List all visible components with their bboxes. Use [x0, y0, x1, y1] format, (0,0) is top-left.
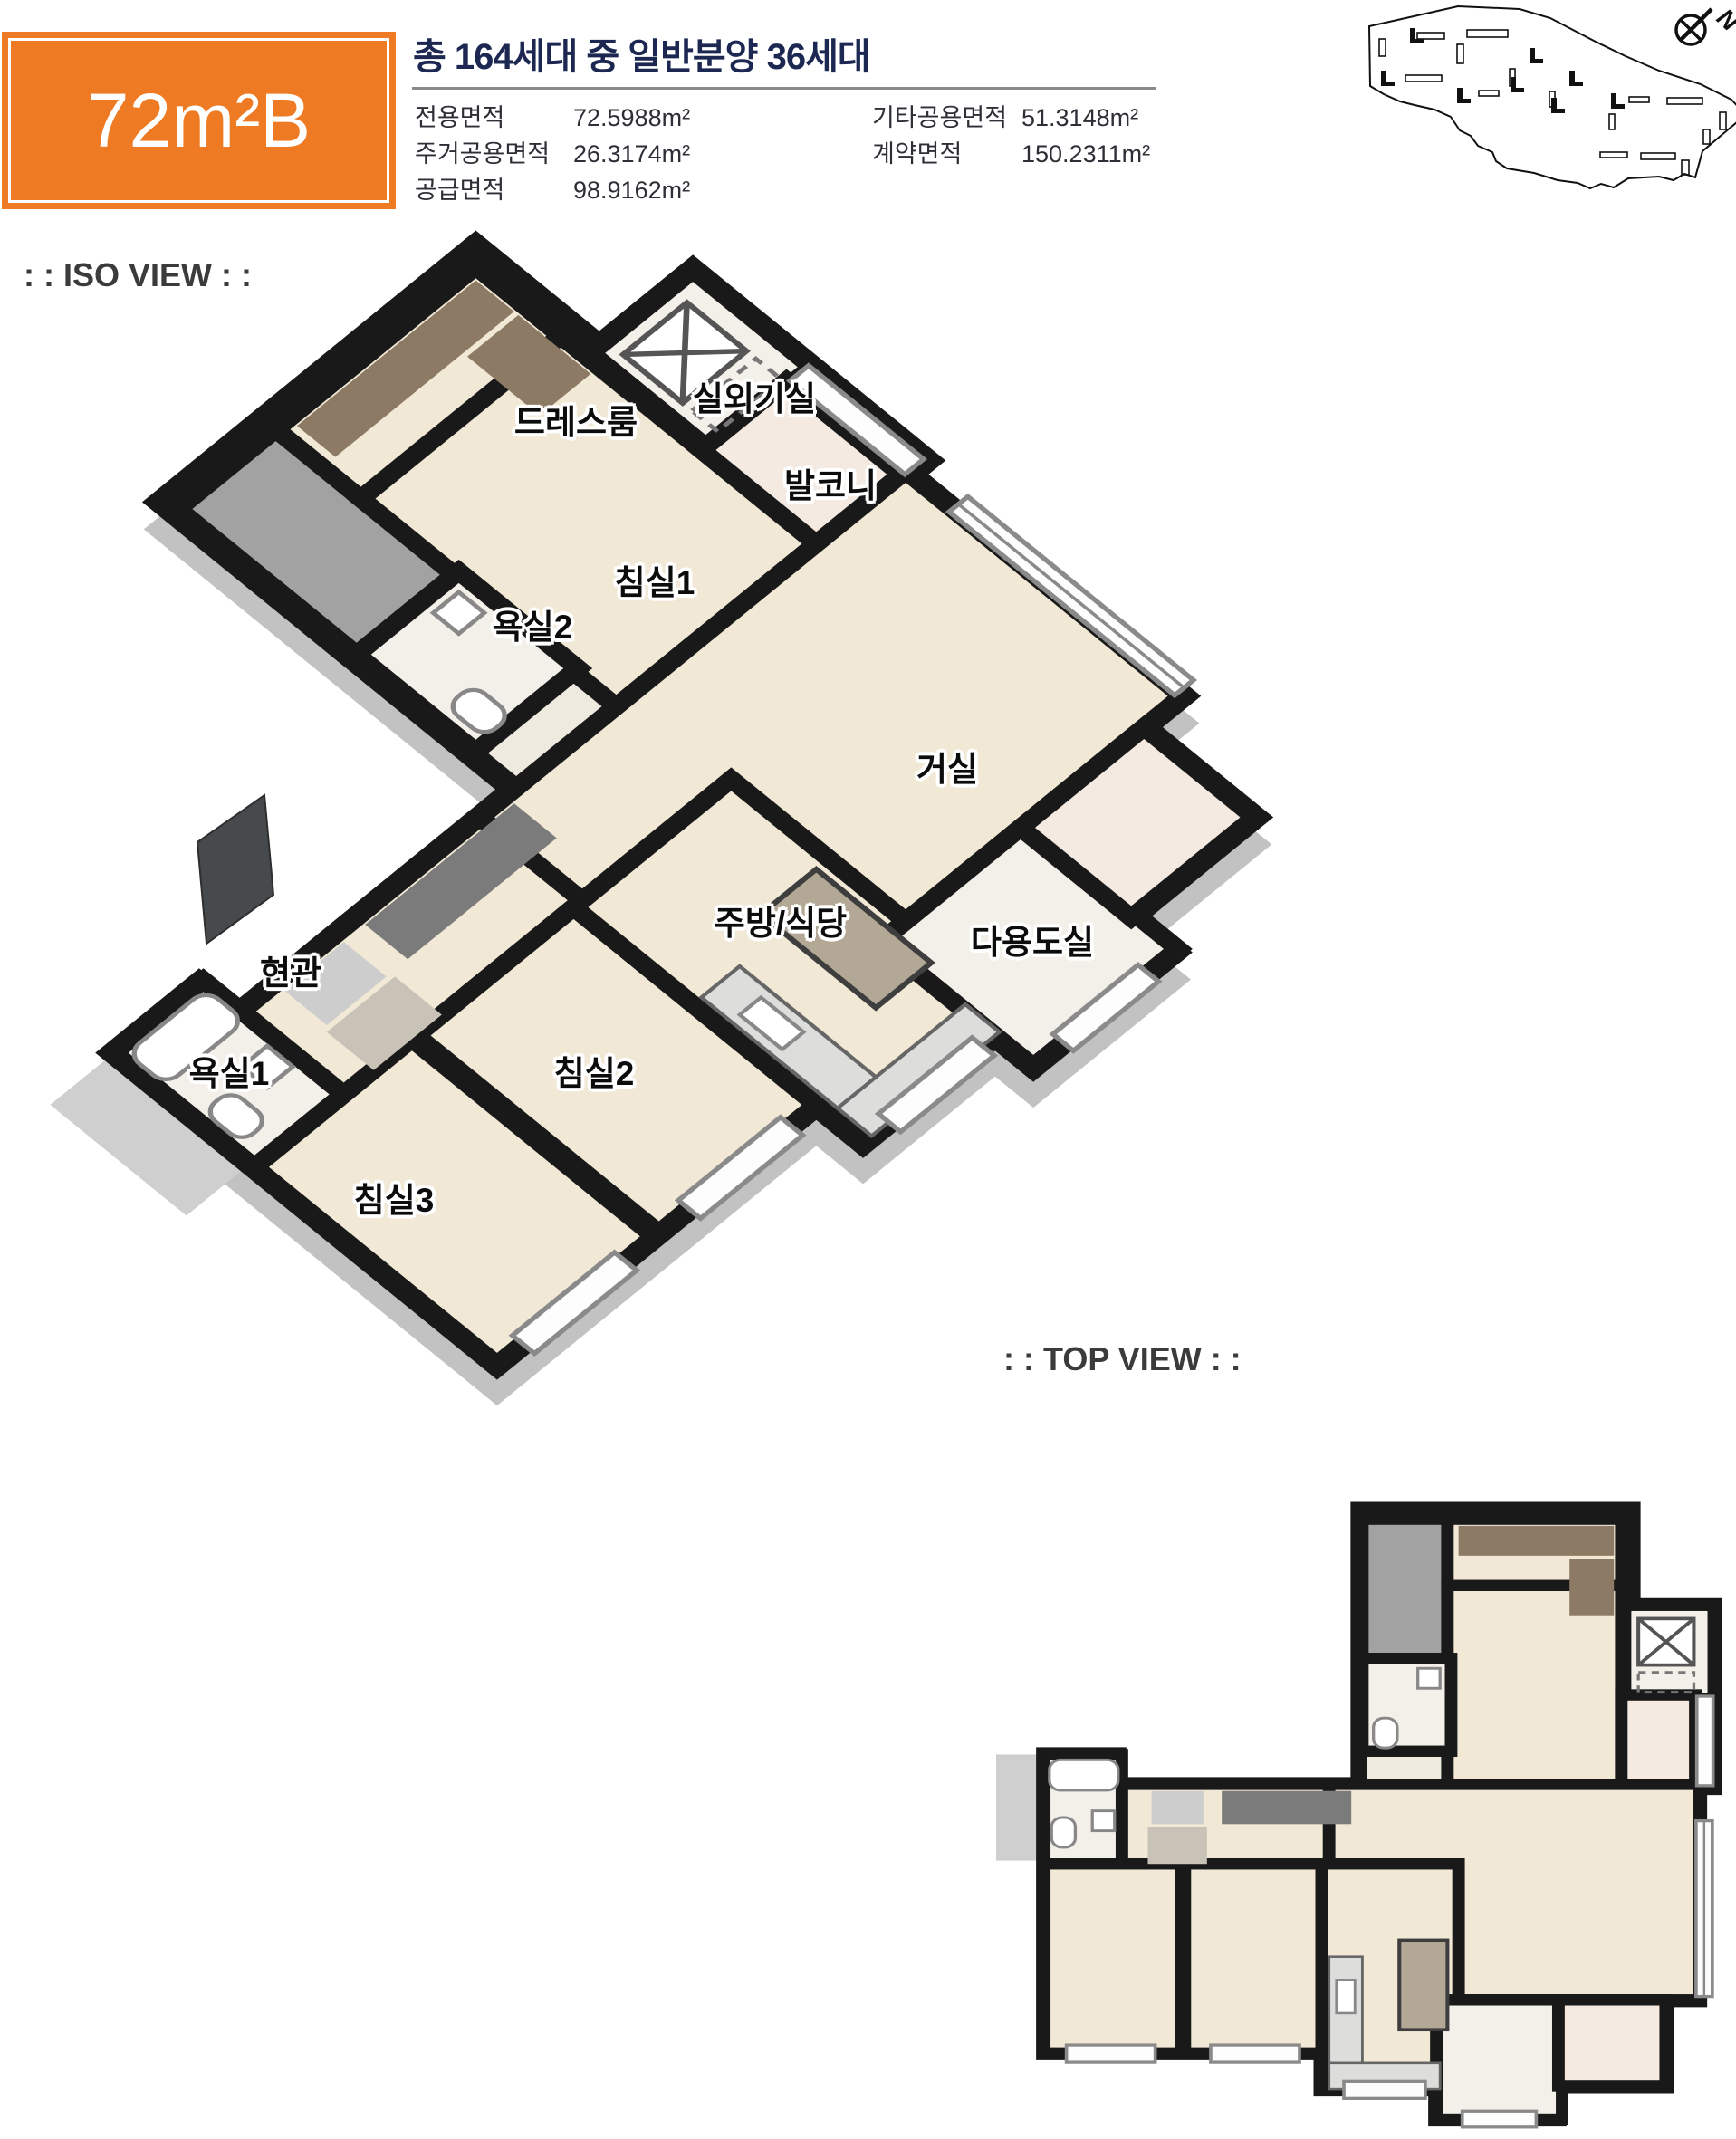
stat-value-other-area: 51.3148m² [1021, 101, 1138, 134]
unit-type-badge-border: 72m²B [8, 38, 389, 203]
highlighted-unit-buildings [1381, 28, 1625, 113]
top-view-heading: : : TOP VIEW : : [1003, 1340, 1242, 1378]
stat-value-contract-area: 150.2311m² [1021, 138, 1150, 170]
stat-label-supply-area: 공급면적 [415, 174, 504, 206]
stat-label-exclusive-area: 전용면적 [415, 101, 504, 134]
stat-label-contract-area: 계약면적 [872, 138, 962, 170]
site-location-map: N [1313, 0, 1736, 213]
iso-floorplan-svg [0, 217, 1313, 1521]
stat-value-exclusive-area: 72.5988m² [573, 101, 690, 134]
stat-value-shared-area: 26.3174m² [573, 138, 690, 170]
stat-label-other-area: 기타공용면적 [872, 101, 1007, 134]
header-divider [412, 87, 1156, 90]
compass-icon: N [1676, 3, 1736, 44]
stat-value-supply-area: 98.9162m² [573, 174, 690, 206]
compass-north-label: N [1712, 3, 1736, 36]
top-floorplan-svg [996, 1476, 1736, 2139]
front-door-panel [197, 795, 273, 944]
unit-type-badge: 72m²B [2, 32, 396, 209]
unit-type-label: 72m²B [87, 77, 311, 165]
floorplan-brochure-page: 72m²B 총 164세대 중 일반분양 36세대 전용면적 72.5988m²… [0, 0, 1736, 2139]
stat-label-shared-area: 주거공용면적 [415, 138, 550, 170]
page-title: 총 164세대 중 일반분양 36세대 [413, 27, 870, 80]
